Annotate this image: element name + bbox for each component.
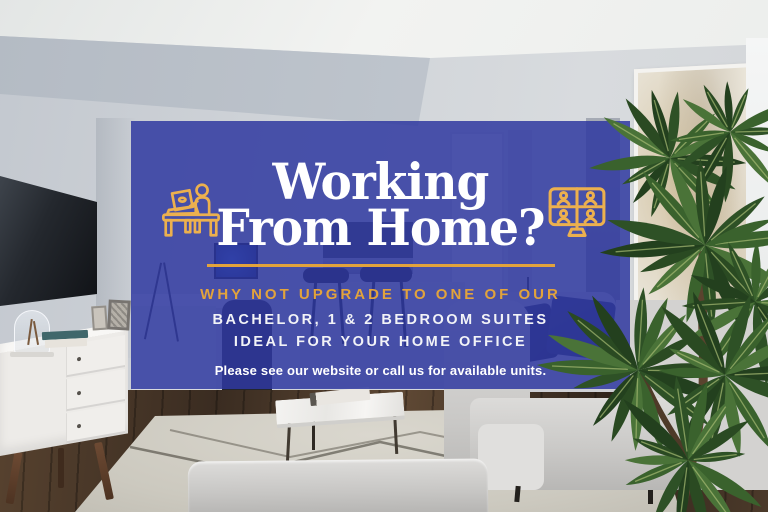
sofa-leg xyxy=(648,490,653,504)
drawer-knob xyxy=(77,356,81,361)
foreground-bench xyxy=(188,458,489,512)
cloche-base xyxy=(10,352,54,357)
promo-kicker: WHY NOT UPGRADE TO ONE OF OUR xyxy=(131,287,630,303)
wall-tv xyxy=(0,176,100,311)
promo-headline: Working From Home? xyxy=(146,159,615,251)
photo-frame xyxy=(91,306,108,331)
promo-detail-line2: IDEAL FOR YOUR HOME OFFICE xyxy=(131,334,630,351)
photo-frame xyxy=(107,299,131,330)
gold-divider xyxy=(207,264,555,267)
promo-overlay-panel: Working From Home? WHY NOT UPGRADE TO ON… xyxy=(131,121,630,389)
cloche-twig xyxy=(27,319,32,345)
credenza-leg xyxy=(58,448,64,488)
window-pillar xyxy=(746,38,768,310)
promo-detail-line1: BACHELOR, 1 & 2 BEDROOM SUITES xyxy=(131,312,630,329)
drawer-knob xyxy=(77,390,81,395)
drawer-knob xyxy=(77,423,81,428)
headline-line2: From Home? xyxy=(146,205,615,251)
promo-banner: Working From Home? WHY NOT UPGRADE TO ON… xyxy=(0,0,768,512)
cloche-twig xyxy=(33,321,39,345)
promo-note: Please see our website or call us for av… xyxy=(131,363,630,378)
